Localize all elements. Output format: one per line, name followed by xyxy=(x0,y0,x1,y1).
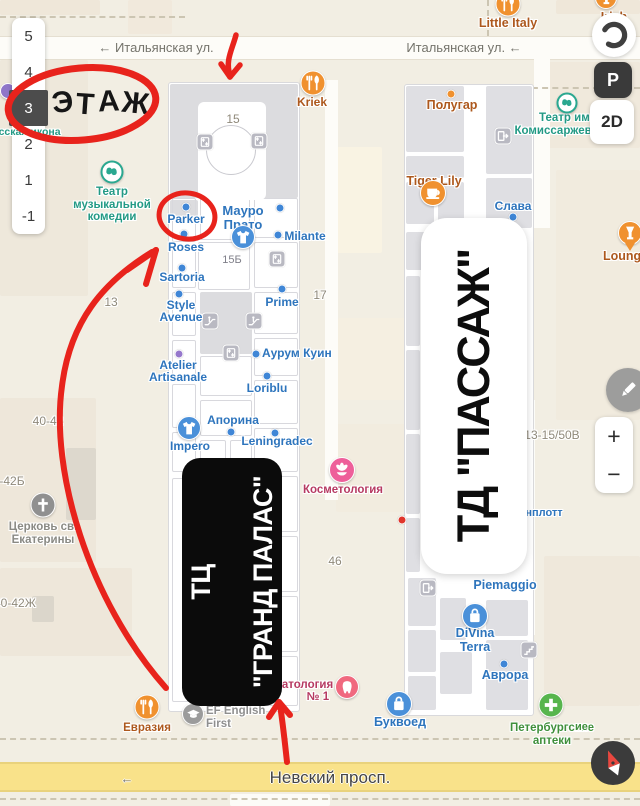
aporina-dot[interactable] xyxy=(227,428,236,437)
bld-40-42zh-label: 40-42Ж xyxy=(0,597,36,609)
mall-atrium-circle xyxy=(206,125,256,175)
food-icon[interactable] xyxy=(301,71,326,96)
building-block xyxy=(0,568,132,656)
room xyxy=(406,518,420,572)
floor-note-letter: Э xyxy=(50,85,76,122)
ef-english-first-label[interactable]: EF English First xyxy=(206,705,265,730)
bag-icon[interactable] xyxy=(386,691,412,717)
handwritten-floor-note: ЭТАЖ xyxy=(52,86,149,120)
atelier-artisanale-label[interactable]: Atelier Artisanale xyxy=(149,359,207,383)
building-block xyxy=(338,318,406,400)
aporina-label[interactable]: Апорина xyxy=(207,414,259,426)
room xyxy=(406,434,420,514)
tserkov-ekateriny-label[interactable]: Церковь св. Екатерины xyxy=(9,521,78,546)
aurum-kuin-label[interactable]: Аурум Куин xyxy=(262,347,332,359)
cup-icon[interactable] xyxy=(420,180,446,206)
bld-40-42-label: 40-42 xyxy=(33,415,64,427)
room xyxy=(200,356,252,396)
zoom-controls: + − xyxy=(595,417,633,493)
food-icon[interactable] xyxy=(135,695,160,720)
impero-label[interactable]: Impero xyxy=(170,440,210,452)
cross-icon[interactable] xyxy=(31,493,56,518)
exit-icon[interactable] xyxy=(495,128,512,145)
italyanskaya-right-street-label: Итальянская ул. ← xyxy=(406,40,521,55)
loriblu-label[interactable]: Loriblu xyxy=(247,382,288,394)
floor-button-4[interactable]: 4 xyxy=(12,54,45,90)
room xyxy=(406,276,420,346)
floor-note-letter: Т xyxy=(75,87,96,122)
compass-button[interactable] xyxy=(590,740,636,786)
room xyxy=(408,676,436,710)
building-block xyxy=(544,556,640,706)
bld-15-label: 15 xyxy=(226,113,239,125)
elevator-icon[interactable] xyxy=(197,134,214,151)
tshirt-icon[interactable] xyxy=(177,416,201,440)
building-block xyxy=(230,794,330,806)
shenplott-fragment-label[interactable]: нплотт xyxy=(525,507,562,519)
sartoria-label[interactable]: Sartoria xyxy=(159,271,204,283)
wine-icon[interactable] xyxy=(618,221,640,245)
plus-icon[interactable] xyxy=(539,693,564,718)
bld-13-label: 13 xyxy=(104,296,117,308)
teatr-muz-komedii-label[interactable]: Театр музыкальной комедии xyxy=(73,186,151,224)
polugar-label[interactable]: Полугар xyxy=(427,99,478,113)
milante-label[interactable]: Milante xyxy=(284,230,325,242)
italyanskaya-left-street-label: ← Итальянская ул. xyxy=(98,40,213,55)
avrora-label[interactable]: Аврора xyxy=(482,669,529,683)
floor-button-1[interactable]: 1 xyxy=(12,162,45,198)
bld-40-42b-label: 40-42Б xyxy=(0,475,25,487)
piemaggio-label[interactable]: Piemaggio xyxy=(473,579,536,593)
card-line: ТЦ xyxy=(186,476,217,688)
mode-2d-button[interactable]: 2D xyxy=(590,100,634,144)
red-arrow-bottom xyxy=(280,705,287,762)
food-icon[interactable] xyxy=(496,0,521,17)
red-poi-dot[interactable] xyxy=(398,516,407,525)
pencil-icon xyxy=(617,379,639,401)
elevator-icon[interactable] xyxy=(223,345,240,362)
floor-note-letter: Ж xyxy=(121,86,152,123)
bld-13-15-50v-label: 13-15/50В xyxy=(524,429,579,441)
kosmetologia-label[interactable]: Косметология xyxy=(303,484,383,497)
escalator-icon[interactable] xyxy=(246,313,263,330)
nevsky-street-label: Невский просп. xyxy=(270,768,391,788)
road xyxy=(0,36,640,60)
prime-dot[interactable] xyxy=(278,285,287,294)
style-avenue-label[interactable]: Style Avenue xyxy=(160,299,203,323)
zoom-in-button[interactable]: + xyxy=(595,417,633,455)
card-text: ТД "ПАССАЖ" xyxy=(421,218,527,574)
parker-dot[interactable] xyxy=(182,203,191,212)
parking-button[interactable]: P xyxy=(594,62,632,98)
card-line: "ГРАНД ПАЛАС" xyxy=(248,476,279,688)
floor-button-3[interactable]: 3 xyxy=(9,90,48,126)
stairs-icon[interactable] xyxy=(521,642,538,659)
bld-17-label: 17 xyxy=(313,289,326,301)
prime-label[interactable]: Prime xyxy=(265,296,298,308)
shop-dot[interactable] xyxy=(276,204,285,213)
bag-icon[interactable] xyxy=(462,603,488,629)
road xyxy=(534,58,550,228)
room xyxy=(198,242,250,290)
theater-icon[interactable] xyxy=(557,93,578,114)
room xyxy=(440,652,472,694)
theater-icon[interactable] xyxy=(101,161,124,184)
tram-dashes xyxy=(0,798,640,800)
green-fragment-label[interactable]: ие xyxy=(575,721,588,733)
flower-icon[interactable] xyxy=(329,457,355,483)
floor-note-letter: А xyxy=(97,84,120,119)
divina-terra-label[interactable]: DiVina Terra xyxy=(456,627,495,654)
room xyxy=(406,350,420,430)
room-15b-label: 15Б xyxy=(222,254,241,266)
roses-dot[interactable] xyxy=(180,230,189,239)
loriblu-dot[interactable] xyxy=(263,372,272,381)
aurum-dot[interactable] xyxy=(252,350,261,359)
building-block xyxy=(334,147,382,253)
tshirt-icon[interactable] xyxy=(231,225,255,249)
layers-button[interactable] xyxy=(592,13,636,57)
grand-palace-name-card: ТЦ "ГРАНД ПАЛАС" xyxy=(182,458,282,706)
little-italy-label[interactable]: Little Italy xyxy=(479,17,537,31)
floor-button-5[interactable]: 5 xyxy=(12,18,45,54)
escalator-icon[interactable] xyxy=(202,313,219,330)
layers-icon xyxy=(599,20,629,50)
stomatologia-no-label[interactable]: № 1 xyxy=(307,691,329,704)
floor-button--1[interactable]: -1 xyxy=(12,198,45,234)
exit-icon[interactable] xyxy=(420,580,437,597)
bld-46-label: 46 xyxy=(328,555,341,567)
passage-name-card: ТД "ПАССАЖ" xyxy=(421,218,527,574)
compass-icon xyxy=(590,740,636,786)
parker-label[interactable]: Parker xyxy=(167,213,204,225)
room xyxy=(406,86,464,152)
tooth-icon[interactable] xyxy=(335,675,359,699)
zoom-out-button[interactable]: − xyxy=(595,455,633,493)
map-app-screen: ParkerRosesSartoriaStyle AvenueМауро Пра… xyxy=(0,0,640,806)
russkaya-ikona-label[interactable]: Русская икона xyxy=(0,127,61,139)
kriek-label[interactable]: Kriek xyxy=(297,96,327,108)
elevator-icon[interactable] xyxy=(269,251,286,268)
road xyxy=(325,80,338,500)
building-block xyxy=(0,0,100,15)
leningradec-label[interactable]: Leningradec xyxy=(241,435,312,447)
nevsky-arrow-street-label: ← xyxy=(121,771,134,786)
building-block xyxy=(66,448,96,520)
bukvoed-label[interactable]: Буквоед xyxy=(374,716,426,730)
gradcap-icon[interactable] xyxy=(182,703,204,725)
slava-label[interactable]: Слава xyxy=(495,200,532,212)
elevator-icon[interactable] xyxy=(251,133,268,150)
milante-dot[interactable] xyxy=(274,231,283,240)
evrazia-label[interactable]: Евразия xyxy=(123,722,171,735)
roses-label[interactable]: Roses xyxy=(168,241,204,253)
room xyxy=(408,630,436,672)
